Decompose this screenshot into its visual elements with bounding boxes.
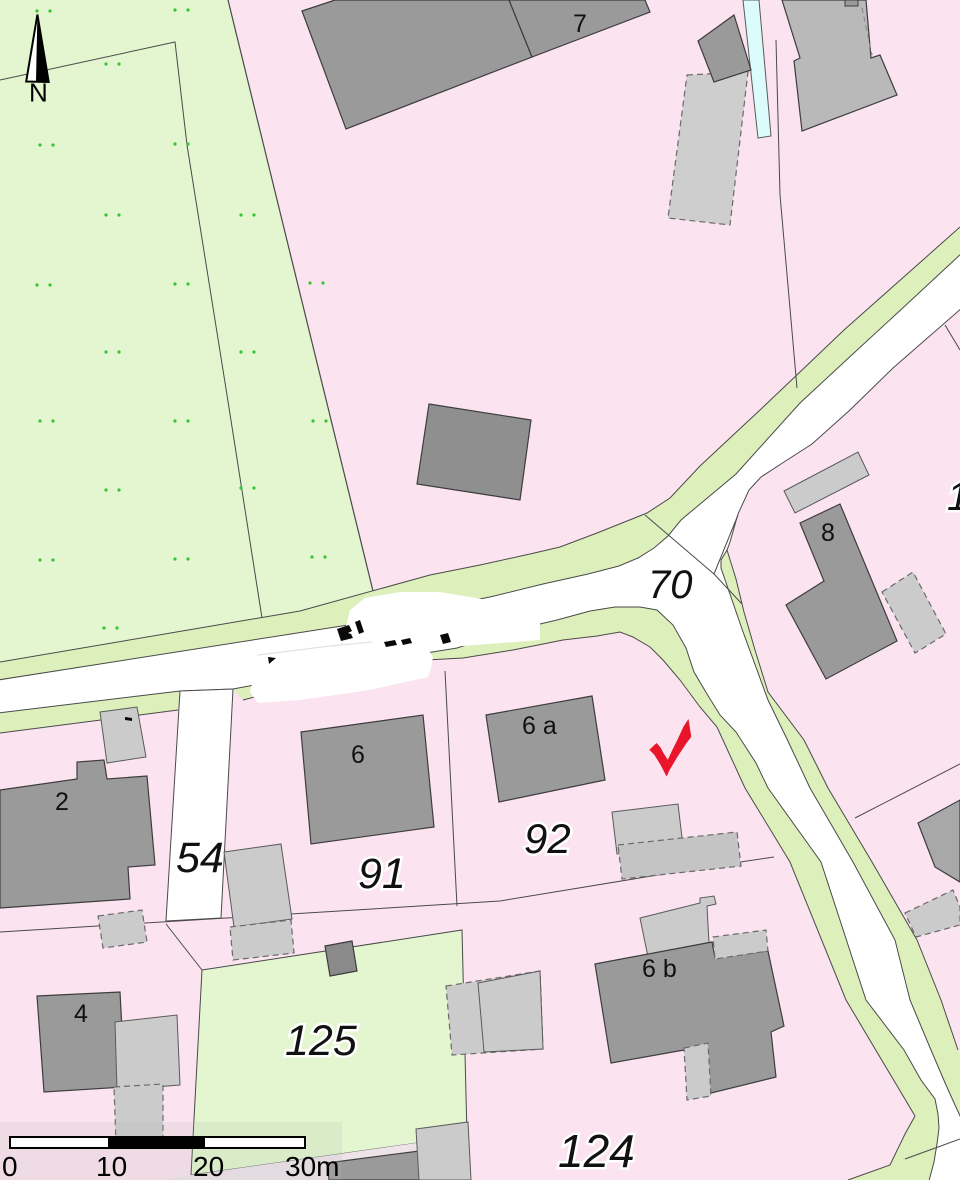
svg-text:6 a: 6 a xyxy=(522,712,557,740)
svg-text:1: 1 xyxy=(947,475,960,519)
svg-text:N: N xyxy=(29,78,48,108)
svg-text:54: 54 xyxy=(176,834,224,882)
svg-text:7: 7 xyxy=(573,10,587,38)
svg-text:2: 2 xyxy=(55,788,69,816)
svg-text:8: 8 xyxy=(821,519,835,547)
svg-text:91: 91 xyxy=(358,850,406,898)
svg-text:10: 10 xyxy=(96,1151,127,1180)
svg-text:70: 70 xyxy=(648,563,693,607)
svg-text:6: 6 xyxy=(351,741,365,769)
svg-text:92: 92 xyxy=(524,815,571,862)
svg-text:30m: 30m xyxy=(285,1151,339,1180)
svg-text:0: 0 xyxy=(2,1151,18,1180)
svg-text:124: 124 xyxy=(558,1125,635,1177)
svg-text:125: 125 xyxy=(285,1017,358,1065)
svg-text:20: 20 xyxy=(193,1151,224,1180)
svg-text:4: 4 xyxy=(74,1000,88,1028)
svg-text:6 b: 6 b xyxy=(642,955,677,983)
